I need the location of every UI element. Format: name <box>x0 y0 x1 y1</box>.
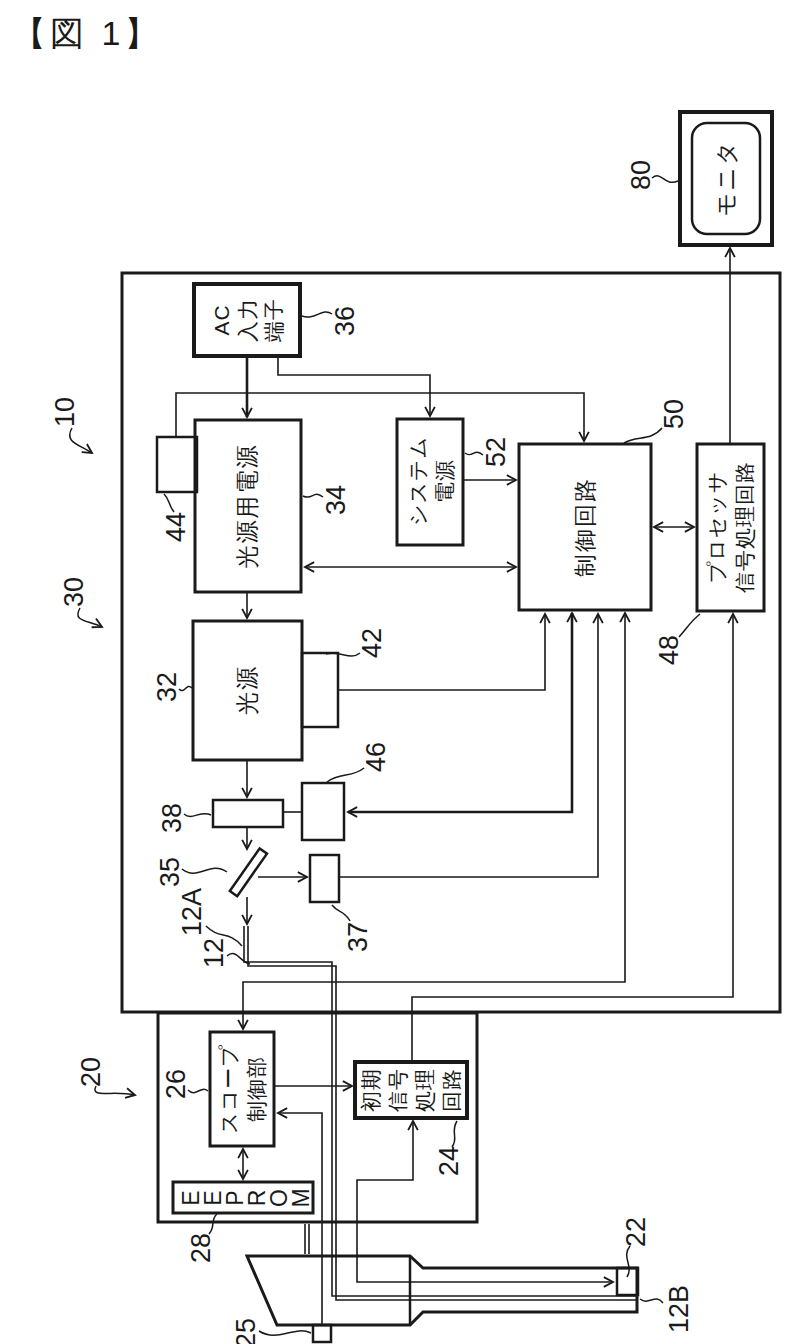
line-initial-signal-to-tip-bidir <box>357 1121 613 1282</box>
endoscope-body <box>247 1256 637 1325</box>
ref-26-leader <box>188 1089 208 1092</box>
ref-46: 46 <box>361 742 391 772</box>
ref-28: 28 <box>186 1233 216 1263</box>
ref-48: 48 <box>654 635 684 665</box>
ref-48-leader <box>679 614 700 637</box>
ac-line3: 端子 <box>262 298 285 342</box>
ref-28-leader <box>209 1214 217 1234</box>
ref-80: 80 <box>626 160 656 190</box>
initial-signal-line4: 回路 <box>440 1068 463 1112</box>
detector-37-box <box>310 855 339 902</box>
ref-26: 26 <box>161 1069 191 1099</box>
ref-34-leader <box>303 494 323 497</box>
light-source-label: 光源 <box>234 665 260 715</box>
ref-24-leader <box>452 1121 457 1147</box>
ref-10: 10 <box>50 397 80 427</box>
scope-controller-line2: 制御部 <box>245 1056 268 1122</box>
line-switch-to-scope-controller <box>278 1113 322 1325</box>
initial-signal-line2: 信号 <box>386 1068 409 1112</box>
ref-44-leader <box>164 494 174 512</box>
ref-12: 12 <box>199 938 229 968</box>
system-power-line1: システム <box>406 436 429 526</box>
ref-25-leader <box>259 1331 311 1335</box>
ref-32: 32 <box>152 672 182 702</box>
ref-35: 35 <box>155 857 185 887</box>
ref-36: 36 <box>330 306 360 336</box>
ref-50: 50 <box>659 399 689 429</box>
eeprom-letter-6: M <box>288 1186 314 1207</box>
filter-38-box <box>213 800 283 827</box>
imaging-tip-box <box>617 1268 638 1295</box>
system-power-line2: 電源 <box>433 459 456 503</box>
ref-34: 34 <box>321 485 351 515</box>
ref-52: 52 <box>481 437 511 467</box>
ref-46-leader <box>327 768 364 782</box>
control-circuit-label: 制御回路 <box>572 477 598 577</box>
sensor-42-box <box>302 653 338 727</box>
ref-12B-leader <box>640 1299 663 1303</box>
ref-37: 37 <box>343 922 373 952</box>
initial-signal-line3: 処理 <box>413 1068 436 1112</box>
ref-12-leader <box>227 954 250 964</box>
ref-42-leader <box>326 653 360 656</box>
ref-36-leader <box>302 312 332 317</box>
ref-38-leader <box>184 814 211 817</box>
ref-22-leader <box>627 1246 630 1277</box>
processor-signal-line2: 信号処理回路 <box>733 461 756 593</box>
mirror-35 <box>230 848 267 896</box>
ref-24: 24 <box>434 1146 464 1176</box>
light-source-power-label: 光源用電源 <box>234 444 260 569</box>
diaphragm-46-box <box>302 783 344 840</box>
patent-figure-page: 【図 1】 モニタ AC 入力 端子 光源用電源 システム 電源 制御回路 プロ… <box>0 0 790 1344</box>
ref-50-leader <box>624 428 662 443</box>
line-inlet-to-control <box>176 393 584 441</box>
line-ac-to-system-power <box>278 357 430 416</box>
ref-37-leader <box>332 905 350 921</box>
processor-signal-line1: プロセッサ <box>705 471 728 583</box>
monitor-label: モニタ <box>713 140 739 217</box>
ref-20: 20 <box>76 1057 106 1087</box>
initial-signal-line1: 初期 <box>359 1068 382 1112</box>
ref-38: 38 <box>157 803 187 833</box>
figure-title: 【図 1】 <box>12 14 162 52</box>
scope-controller-line1: スコープ <box>217 1044 240 1133</box>
ref-12B: 12B <box>664 1285 694 1333</box>
block-diagram: 【図 1】 モニタ AC 入力 端子 光源用電源 システム 電源 制御回路 プロ… <box>0 0 790 1344</box>
ref-22: 22 <box>621 1217 651 1247</box>
ac-line1: AC <box>210 304 233 335</box>
ref-10-leader <box>70 428 92 453</box>
power-inlet-box <box>157 437 197 492</box>
ref-42: 42 <box>357 628 387 658</box>
scope-switch-box <box>313 1325 331 1342</box>
ref-30: 30 <box>59 577 89 607</box>
ref-44: 44 <box>161 512 191 542</box>
ref-35-leader <box>182 868 227 873</box>
ref-30-leader <box>78 608 102 627</box>
ref-12A: 12A <box>177 888 207 936</box>
ac-line2: 入力 <box>236 298 259 342</box>
ref-25: 25 <box>231 1318 261 1344</box>
